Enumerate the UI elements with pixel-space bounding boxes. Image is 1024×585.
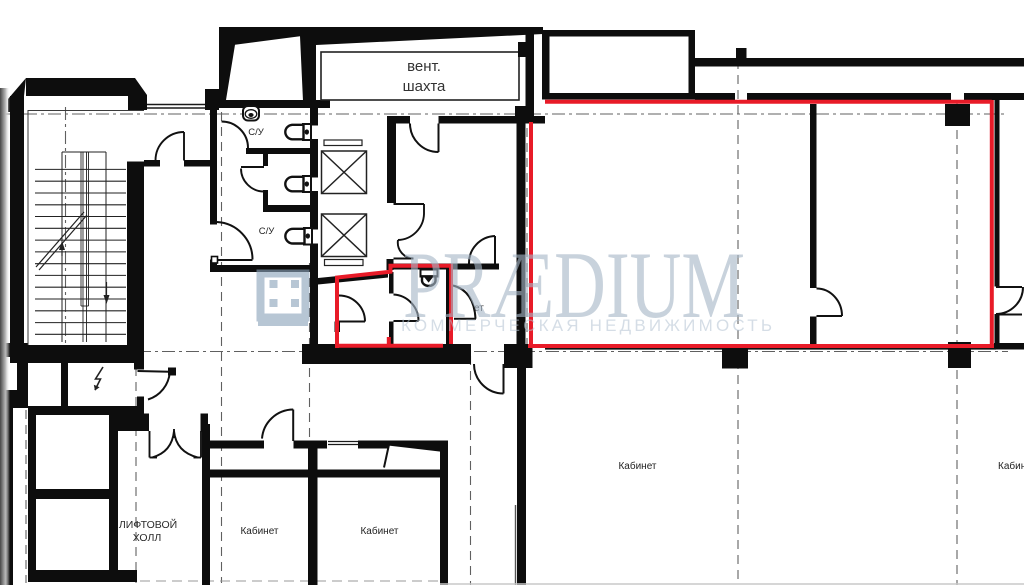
svg-text:вент.: вент. [407, 58, 441, 75]
svg-text:шахта: шахта [403, 78, 446, 95]
svg-text:ЛИФТОВОЙ: ЛИФТОВОЙ [119, 518, 177, 531]
svg-text:Кабинет: Кабинет [618, 460, 656, 472]
svg-text:С/У: С/У [259, 226, 276, 237]
svg-text:Кабинет: Кабинет [998, 460, 1024, 472]
svg-text:С/У: С/У [248, 127, 265, 138]
svg-text:Кабинет: Кабинет [360, 525, 398, 537]
svg-text:Кабинет: Кабинет [240, 525, 278, 537]
svg-text:ХОЛЛ: ХОЛЛ [133, 532, 162, 544]
